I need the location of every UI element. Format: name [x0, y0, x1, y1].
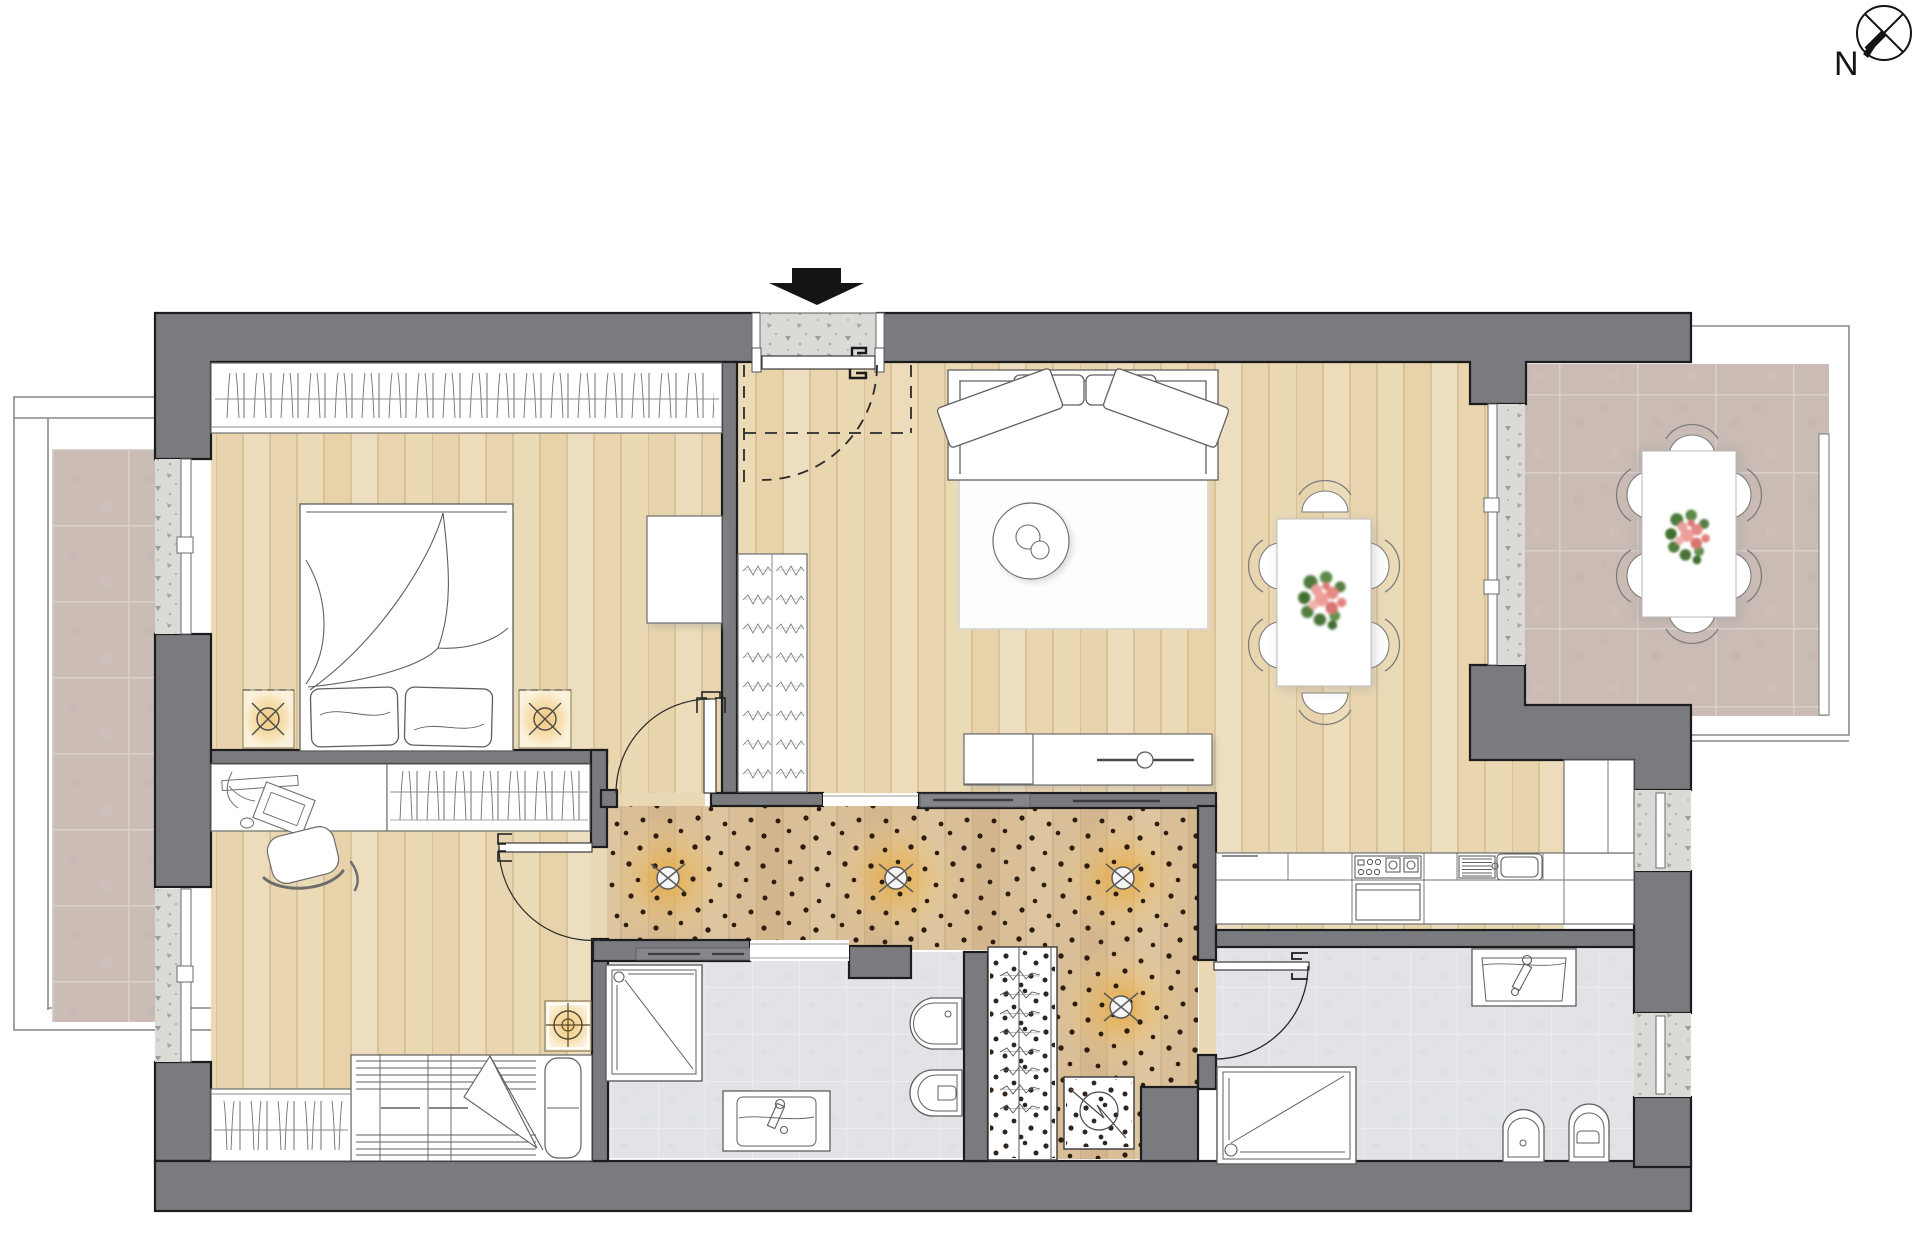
svg-text:N: N [1834, 45, 1859, 83]
